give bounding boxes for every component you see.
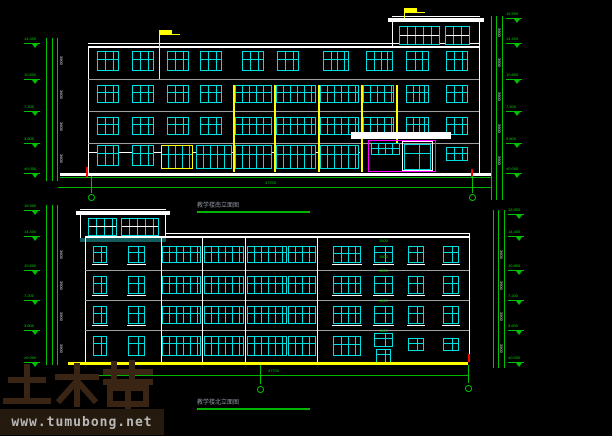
window-mullion [295,247,296,262]
window-transom [201,59,221,60]
be-window-row-2f-window [204,306,244,324]
window-mullion [239,247,240,262]
window-sill [332,264,362,265]
window-sill [332,325,362,326]
window-mullion [208,86,209,102]
window-mullion [309,307,310,323]
te-right-marker: 15.900 [506,12,518,16]
window-transom [277,124,315,125]
window-sill [373,325,394,326]
window-transom [248,343,286,344]
window-transom [201,92,221,93]
window-transom [133,59,153,60]
te-left-dim-text: 3600 [59,154,63,163]
window-mullion [417,339,418,350]
be-facade-post [161,238,162,362]
window-mullion [249,146,250,168]
be-right-marker: 15.900 [508,208,520,212]
elevation-marker-triangle [32,144,38,148]
window-mullion [348,277,349,293]
be-total-dim-text: 47700 [268,369,279,373]
window-mullion [334,118,335,134]
window-mullion [334,86,335,102]
watermark-site-text: www.tumubong.net [11,415,152,430]
window-mullion [137,219,138,235]
window-mullion [422,52,423,70]
window-transom [364,92,393,93]
te-window-row-1f-window [161,145,193,169]
te-right-dim-text: 3600 [497,28,501,37]
window-transom [444,343,458,344]
window-mullion [454,86,455,102]
te-left-marker: ±0.000 [24,167,36,171]
window-mullion [378,144,379,154]
be-right-dim-text: 3600 [499,344,503,353]
window-mullion [344,52,345,70]
window-transom [289,283,315,284]
window-transom [321,154,358,155]
window-transom [447,124,467,125]
window-mullion [239,307,240,323]
window-mullion [218,277,219,293]
window-mullion [232,247,233,262]
window-transom [205,313,243,314]
window-mullion [232,277,233,293]
window-sill [442,295,460,296]
window-mullion [387,52,388,70]
window-transom [94,283,106,284]
be-window-row-1f-window [128,336,145,356]
be-window-row-3f-window [374,276,393,294]
window-mullion [419,86,420,102]
elevation-marker-triangle [516,271,522,275]
te-axis-stem [472,176,473,193]
te-roofline-lower [88,46,480,48]
elevation-marker-triangle [32,44,38,48]
be-axis-stem [468,365,469,383]
window-mullion [263,86,264,102]
window-mullion [275,337,276,355]
window-mullion [218,307,219,323]
be-window-row-4f-window [93,246,107,263]
be-window-above-door [374,333,393,347]
window-mullion [242,146,243,168]
be-left-marker: 15.900 [24,204,36,208]
window-mullion [275,307,276,323]
te-facade-post [233,85,235,172]
window-transom [334,313,360,314]
window-mullion [348,307,349,323]
window-mullion [341,307,342,323]
window-mullion [462,148,463,160]
te-window-row-4f-window [366,51,393,71]
be-window-dim-tag: 1500 [379,269,388,273]
window-mullion [290,146,291,168]
te-left-marker: 10.800 [24,73,36,77]
window-mullion [348,337,349,355]
window-mullion [175,118,176,134]
window-transom [248,252,286,253]
window-mullion [176,307,177,323]
window-transom [201,124,221,125]
be-facade-post [202,238,203,362]
elevation-marker-triangle [514,19,520,23]
be-window-row-3f-window [443,276,459,294]
te-right-marker: 3.600 [506,137,516,141]
window-mullion [138,337,139,355]
window-mullion [168,146,169,168]
te-axis-bubble [88,194,95,201]
window-transom [94,313,106,314]
te-entrance-canopy [351,132,451,139]
elevation-marker-triangle [516,363,522,367]
window-mullion [169,337,170,355]
window-sill [373,295,394,296]
window-mullion [311,86,312,102]
be-window-row-4f-window [128,246,145,263]
be-window-row-4f-window [162,246,201,263]
window-mullion [183,118,184,134]
window-transom [324,59,348,60]
te-window-row-4f-window [242,51,264,71]
window-mullion [239,277,240,293]
window-transom [289,252,315,253]
title-underline [197,211,310,213]
window-mullion [385,307,386,323]
te-annotation-flag [159,30,172,35]
window-transom [98,92,118,93]
window-transom [278,59,298,60]
be-penthouse-window [121,218,159,236]
window-mullion [256,118,257,134]
be-window-row-4f-window [443,246,459,263]
window-mullion [197,247,198,262]
be-penthouse-right-edge [165,215,166,238]
te-left-marker: 7.200 [24,105,34,109]
be-facade-post [245,238,246,362]
window-mullion [268,247,269,262]
window-mullion [169,277,170,293]
be-left-marker: 3.600 [24,324,34,328]
te-penthouse-left-edge [392,22,393,46]
window-mullion [211,307,212,323]
window-mullion [256,86,257,102]
window-mullion [183,52,184,70]
te-window-row-3f-window [446,85,468,103]
window-mullion [189,146,190,168]
window-mullion [176,277,177,293]
window-mullion [250,52,251,70]
window-mullion [224,146,225,168]
be-window-row-3f-window [333,276,361,294]
window-mullion [211,277,212,293]
window-transom [364,124,393,125]
be-window-row-4f-window [333,246,361,263]
window-mullion [327,146,328,168]
window-mullion [112,219,113,235]
window-mullion [302,277,303,293]
window-transom [447,153,467,154]
window-mullion [462,52,463,70]
elevation-marker-triangle [32,80,38,84]
window-mullion [183,86,184,102]
be-window-row-4f-window [204,246,244,263]
window-mullion [341,86,342,102]
te-left-marker: 3.600 [24,137,34,141]
window-transom [94,343,106,344]
be-window-row-1f-window [93,336,107,356]
window-transom [168,92,188,93]
window-transom [98,59,118,60]
te-right-dim-text: 3600 [497,92,501,101]
be-facade-right-edge [469,233,470,362]
window-mullion [297,146,298,168]
be-floor-line [85,270,469,271]
te-window-row-2f-window [97,117,119,135]
window-mullion [254,247,255,262]
window-transom [129,343,144,344]
window-transom [236,92,271,93]
be-right-marker: 10.800 [508,264,520,268]
be-window-row-4f-window [288,246,316,263]
window-mullion [297,86,298,102]
te-penthouse-roof-slab [388,18,484,22]
window-mullion [105,146,106,165]
window-mullion [145,219,146,235]
window-mullion [101,337,102,355]
window-transom [205,252,243,253]
elevation-marker-triangle [32,301,38,305]
window-mullion [225,247,226,262]
te-window-row-1f-window [276,145,316,169]
tumubong-brand-watermark [2,360,162,410]
elevation-marker-triangle [32,174,38,178]
window-sill [127,325,146,326]
window-mullion [113,86,114,102]
window-mullion [341,337,342,355]
te-dim-line-bottom [58,187,492,188]
window-transom [367,59,392,60]
window-sill [127,264,146,265]
window-mullion [355,307,356,323]
flag-tail [417,12,425,13]
te-window-row-1f-window [196,145,232,169]
window-mullion [148,118,149,134]
window-sill [92,325,108,326]
window-transom [129,313,144,314]
window-mullion [105,86,106,102]
te-window-row-2f-window [235,117,272,135]
window-mullion [256,146,257,168]
elevation-marker-triangle [32,331,38,335]
window-mullion [261,337,262,355]
window-mullion [462,118,463,134]
window-transom [289,343,315,344]
be-right-marker: 7.200 [508,294,518,298]
window-mullion [452,247,453,262]
be-axis-bubble [465,385,472,392]
window-mullion [417,277,418,293]
te-window-row-1f-window [97,145,119,166]
window-mullion [148,146,149,165]
be-left-marker: 10.800 [24,264,36,268]
window-mullion [290,86,291,102]
te-penthouse-window [445,26,470,45]
window-transom [407,92,428,93]
window-mullion [113,146,114,165]
window-mullion [295,337,296,355]
be-window-row-2f-window [162,306,201,324]
be-window-row-2f-window [93,306,107,324]
window-transom [243,59,263,60]
be-window-row-1f-window [333,336,361,356]
window-mullion [311,118,312,134]
window-sill [332,295,362,296]
te-window-row-3f-window [406,85,429,103]
be-window-row-3f-window [162,276,201,294]
window-transom [409,252,423,253]
te-total-dim-text: 47700 [265,181,276,185]
be-window-row-1f-window [408,338,424,351]
window-mullion [218,247,219,262]
be-axis-stem [260,365,261,384]
window-mullion [104,219,105,235]
be-axis-bubble [257,386,264,393]
window-mullion [138,277,139,293]
drawing-title-bottom: 教学楼北立面图 [197,399,239,405]
window-mullion [182,146,183,168]
window-mullion [216,52,217,70]
window-mullion [101,277,102,293]
window-mullion [208,52,209,70]
be-penthouse-window [88,218,117,236]
elevation-marker-triangle [514,80,520,84]
window-mullion [208,118,209,134]
window-mullion [327,118,328,134]
te-window-row-4f-window [200,51,222,71]
window-transom [375,252,392,253]
window-transom [122,226,158,227]
te-flag-leader [404,13,405,18]
window-mullion [290,118,291,134]
window-mullion [377,86,378,102]
elevation-marker-triangle [32,112,38,116]
window-mullion [211,247,212,262]
window-mullion [261,277,262,293]
window-mullion [263,118,264,134]
window-transom [129,283,144,284]
te-flag-leader [159,35,160,79]
window-mullion [309,277,310,293]
be-window-row-3f-window [93,276,107,294]
window-mullion [415,52,416,70]
be-window-row-2f-window [443,306,459,324]
window-mullion [275,247,276,262]
be-right-dim-chain [493,210,494,368]
te-window-row-2f-window [200,117,222,135]
window-mullion [254,337,255,355]
window-mullion [249,86,250,102]
window-mullion [96,219,97,235]
be-window-row-2f-window [408,306,424,324]
te-right-marker: 14.400 [506,37,518,41]
te-right-marker: ±0.000 [506,167,518,171]
window-mullion [331,52,332,70]
window-mullion [355,247,356,262]
window-mullion [140,118,141,134]
window-mullion [190,337,191,355]
window-mullion [285,52,286,70]
window-transom [94,252,106,253]
te-right-dim-text: 3600 [497,58,501,67]
window-mullion [183,247,184,262]
be-left-dim-text: 3600 [59,250,63,259]
window-mullion [304,118,305,134]
window-mullion [216,86,217,102]
window-sill [442,325,460,326]
window-transom [334,253,360,254]
te-left-dim-chain [57,38,58,181]
be-window-row-3f-window [408,276,424,294]
te-window-row-3f-window [320,85,359,103]
window-mullion [413,86,414,102]
be-window-row-4f-window [247,246,287,263]
te-facade-post [361,85,363,172]
window-sill [92,295,108,296]
window-mullion [176,247,177,262]
window-transom [444,283,458,284]
window-transom [197,154,231,155]
window-transom [163,283,200,284]
window-mullion [148,86,149,102]
window-mullion [261,307,262,323]
window-mullion [348,247,349,262]
window-transom [168,59,188,60]
te-window-row-2f-window [132,117,154,135]
be-window-row-1f-window [288,336,316,356]
window-mullion [334,146,335,168]
be-right-dim-text: 3600 [499,250,503,259]
be-window-row-3f-window [204,276,244,294]
window-mullion [101,247,102,262]
window-mullion [105,118,106,134]
window-mullion [232,337,233,355]
window-mullion [210,146,211,168]
window-transom [163,343,200,344]
window-transom [444,252,458,253]
window-sill [407,264,425,265]
window-mullion [183,307,184,323]
watermark-site-bar: www.tumubong.net [0,409,164,435]
be-left-dim-text: 3600 [59,281,63,290]
window-mullion [462,86,463,102]
window-mullion [302,337,303,355]
te-annotation-flag [404,8,417,13]
window-transom [205,283,243,284]
be-facade-post [317,238,318,362]
window-mullion [283,86,284,102]
be-window-dim-tag: 1500 [379,329,388,333]
te-left-dim-text: 3600 [59,122,63,131]
window-transom [405,153,430,154]
window-transom [289,313,315,314]
window-transom [133,92,153,93]
window-mullion [391,86,392,102]
te-entrance-door [404,144,431,170]
window-mullion [197,277,198,293]
window-mullion [175,146,176,168]
te-ground-accent [60,177,492,178]
